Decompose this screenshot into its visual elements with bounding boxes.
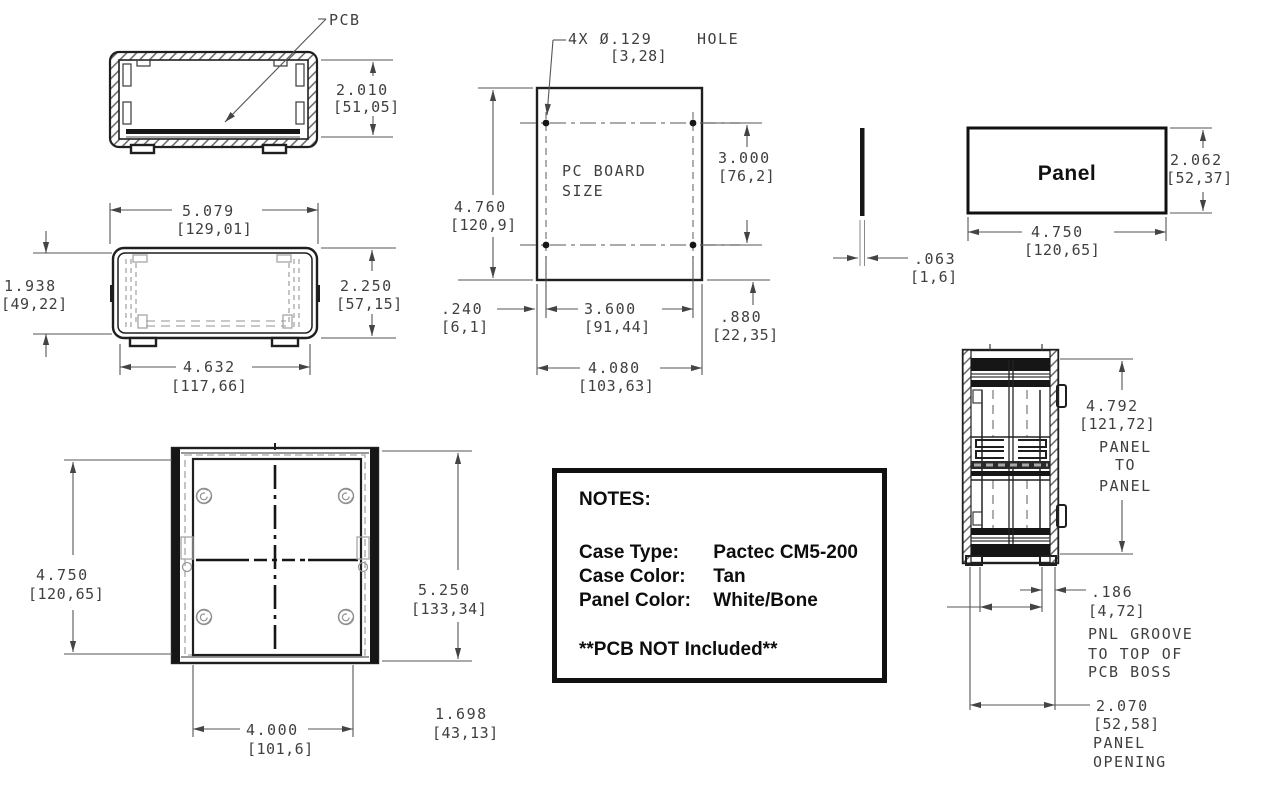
- notes-title: NOTES:: [579, 489, 882, 511]
- notes-row-panel-color: Panel Color: White/Bone: [579, 589, 882, 613]
- boss-span-mm: [101,6]: [247, 740, 314, 758]
- hole-span-h-mm: [91,44]: [584, 318, 651, 336]
- opening-label-2: OPENING: [1093, 753, 1167, 771]
- pcb-height-in: 4.760: [454, 198, 507, 216]
- opening-label-1: PANEL: [1093, 734, 1146, 752]
- notes-box: NOTES: Case Type: Pactec CM5-200 Case Co…: [552, 468, 887, 683]
- p2p-label-1: PANEL: [1099, 438, 1152, 456]
- panel-width-in: 4.750: [1031, 223, 1084, 241]
- notes-row-case-color: Case Color: Tan: [579, 565, 882, 589]
- top-inner-in: 4.750: [36, 566, 89, 584]
- notes-label: Panel Color:: [579, 589, 708, 613]
- panel-height-in: 2.062: [1170, 151, 1223, 169]
- groove-label-3: PCB BOSS: [1088, 663, 1172, 681]
- panel-edge-view: .063 [1,6]: [833, 128, 958, 286]
- top-inner-mm: [120,65]: [28, 585, 104, 603]
- front-inner-width-in: 4.632: [183, 358, 236, 376]
- front-height-mm: [57,15]: [336, 295, 403, 313]
- panel-thickness-in: .063: [914, 250, 956, 268]
- engineering-drawing: PCB 2.010 [51,05] 5.079 [129,01]: [0, 0, 1266, 810]
- pcb-label: PCB: [329, 11, 361, 29]
- board-label-1: PC BOARD: [562, 162, 646, 180]
- pcb-board-edge: [126, 129, 300, 134]
- panel-height-mm: [52,37]: [1166, 169, 1233, 187]
- p2p-label-2: TO: [1115, 456, 1136, 474]
- drawing-canvas: PCB 2.010 [51,05] 5.079 [129,01]: [0, 0, 1266, 810]
- p2p-label-3: PANEL: [1099, 477, 1152, 495]
- edge-offset-in: .240: [441, 300, 483, 318]
- end-view: PCB 2.010 [51,05]: [110, 11, 400, 153]
- top-view: 4.750 [120,65] 5.250 [133,34] 4.000 [101…: [28, 443, 499, 758]
- front-inner-width-mm: [117,66]: [171, 377, 247, 395]
- board-label-2: SIZE: [562, 182, 604, 200]
- pcb-width-in: 4.080: [588, 359, 641, 377]
- mount-hole: [690, 242, 697, 249]
- opening-in: 2.070: [1096, 697, 1149, 715]
- pcb-height-mm: [120,9]: [450, 216, 517, 234]
- notes-label: Case Type:: [579, 541, 708, 565]
- end-height-in: 2.010: [336, 81, 389, 99]
- mount-hole: [690, 120, 697, 127]
- boss-span-in: 4.000: [246, 721, 299, 739]
- front-width-mm: [129,01]: [176, 220, 252, 238]
- groove-label-2: TO TOP OF: [1088, 645, 1183, 663]
- panel-width-mm: [120,65]: [1024, 241, 1100, 259]
- top-outer-mm: [133,34]: [411, 600, 487, 618]
- bottom-offset-in: .880: [720, 308, 762, 326]
- front-view: 5.079 [129,01] 1.938 [49,22] 2.250 [57,1…: [1, 202, 403, 395]
- hole-span-v-mm: [76,2]: [718, 167, 775, 185]
- hole-note-word: HOLE: [697, 30, 739, 48]
- p2p-in: 4.792: [1086, 397, 1139, 415]
- edge-offset-mm: [6,1]: [441, 318, 489, 336]
- notes-label: Case Color:: [579, 565, 708, 589]
- front-inner-height-in: 1.938: [4, 277, 57, 295]
- hole-span-v-in: 3.000: [718, 149, 771, 167]
- top-outer-in: 5.250: [418, 581, 471, 599]
- panel-label: Panel: [1038, 162, 1097, 185]
- notes-value: Pactec CM5-200: [713, 542, 858, 563]
- depth-mm: [43,13]: [432, 724, 499, 742]
- hole-span-h-in: 3.600: [584, 300, 637, 318]
- notes-footnote: **PCB NOT Included**: [579, 639, 882, 661]
- groove-label-1: PNL GROOVE: [1088, 625, 1193, 643]
- end-height-mm: [51,05]: [333, 98, 400, 116]
- pcb-size-view: PC BOARD SIZE 4X Ø.129 HOLE [3,28] 4.760…: [441, 30, 779, 395]
- mount-hole: [543, 242, 550, 249]
- depth-in: 1.698: [435, 705, 488, 723]
- front-width-in: 5.079: [182, 202, 235, 220]
- front-inner-height-mm: [49,22]: [1, 295, 68, 313]
- p2p-mm: [121,72]: [1079, 415, 1155, 433]
- notes-value: White/Bone: [713, 590, 818, 611]
- pcb-width-mm: [103,63]: [578, 377, 654, 395]
- panel-thickness-mm: [1,6]: [910, 268, 958, 286]
- groove-in: .186: [1091, 583, 1133, 601]
- notes-row-case-type: Case Type: Pactec CM5-200: [579, 541, 882, 565]
- bottom-offset-mm: [22,35]: [712, 326, 779, 344]
- panel-face-view: Panel 2.062 [52,37] 4.750 [120,65]: [968, 128, 1233, 259]
- mount-hole: [543, 120, 550, 127]
- front-height-in: 2.250: [340, 277, 393, 295]
- groove-mm: [4,72]: [1088, 602, 1145, 620]
- opening-mm: [52,58]: [1093, 715, 1160, 733]
- side-view: 4.792 [121,72] PANEL TO PANEL .186 [4,72…: [947, 344, 1193, 771]
- hole-note-mm: [3,28]: [610, 47, 667, 65]
- notes-value: Tan: [713, 566, 745, 587]
- hole-note: 4X Ø.129: [568, 30, 652, 48]
